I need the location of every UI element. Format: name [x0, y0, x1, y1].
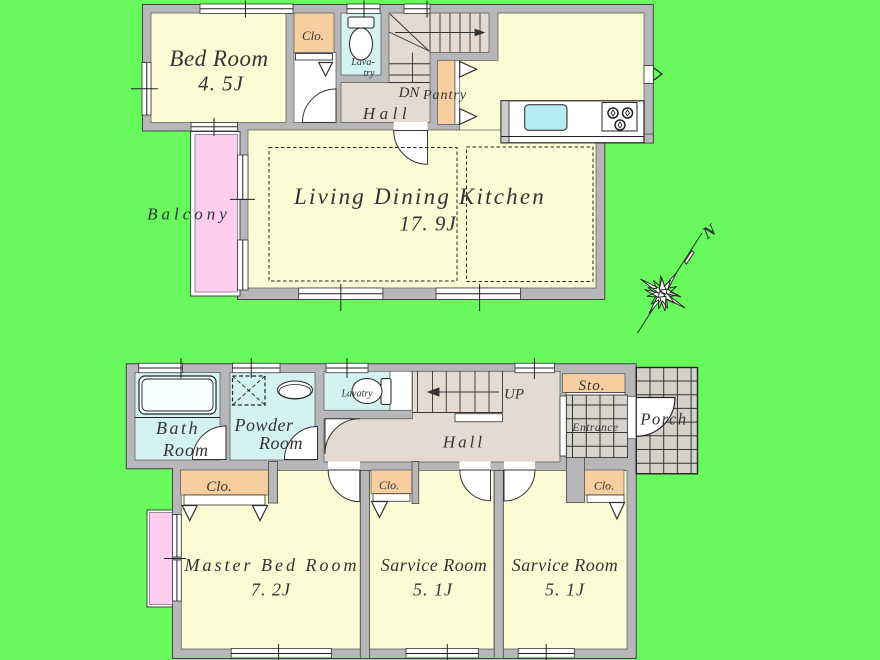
svg-text:Sarvice Room: Sarvice Room: [512, 555, 618, 575]
svg-text:Room: Room: [162, 440, 209, 460]
svg-text:Clo.: Clo.: [206, 479, 231, 495]
svg-text:Porch: Porch: [639, 410, 687, 429]
svg-text:Hall: Hall: [442, 433, 485, 452]
svg-text:Master Bed Room: Master Bed Room: [184, 555, 360, 575]
svg-text:17. 9J: 17. 9J: [399, 212, 457, 236]
svg-text:5. 1J: 5. 1J: [545, 580, 585, 600]
svg-text:Clo.: Clo.: [594, 479, 614, 493]
svg-text:Bath: Bath: [156, 418, 200, 438]
svg-text:Lava-: Lava-: [350, 57, 374, 68]
svg-text:Hall: Hall: [362, 104, 411, 123]
svg-text:7. 2J: 7. 2J: [251, 580, 291, 600]
svg-text:Lavatry: Lavatry: [340, 389, 373, 400]
svg-text:Sarvice Room: Sarvice Room: [381, 555, 487, 575]
svg-text:Room: Room: [258, 433, 303, 453]
svg-text:Balcony: Balcony: [147, 205, 231, 224]
svg-text:Entrance: Entrance: [571, 422, 618, 434]
svg-text:Living Dining Kitchen: Living Dining Kitchen: [293, 184, 546, 209]
svg-text:4. 5J: 4. 5J: [198, 72, 245, 96]
svg-text:Sto.: Sto.: [579, 378, 606, 394]
svg-text:Bed Room: Bed Room: [169, 46, 268, 71]
svg-text:5. 1J: 5. 1J: [413, 580, 453, 600]
svg-text:try: try: [363, 68, 375, 79]
svg-text:Clo.: Clo.: [302, 28, 324, 43]
svg-text:UP: UP: [504, 387, 524, 403]
svg-text:Powder: Powder: [234, 415, 294, 435]
svg-text:DN: DN: [398, 85, 421, 101]
svg-text:Clo.: Clo.: [379, 478, 399, 492]
svg-text:Pantry: Pantry: [422, 88, 467, 103]
